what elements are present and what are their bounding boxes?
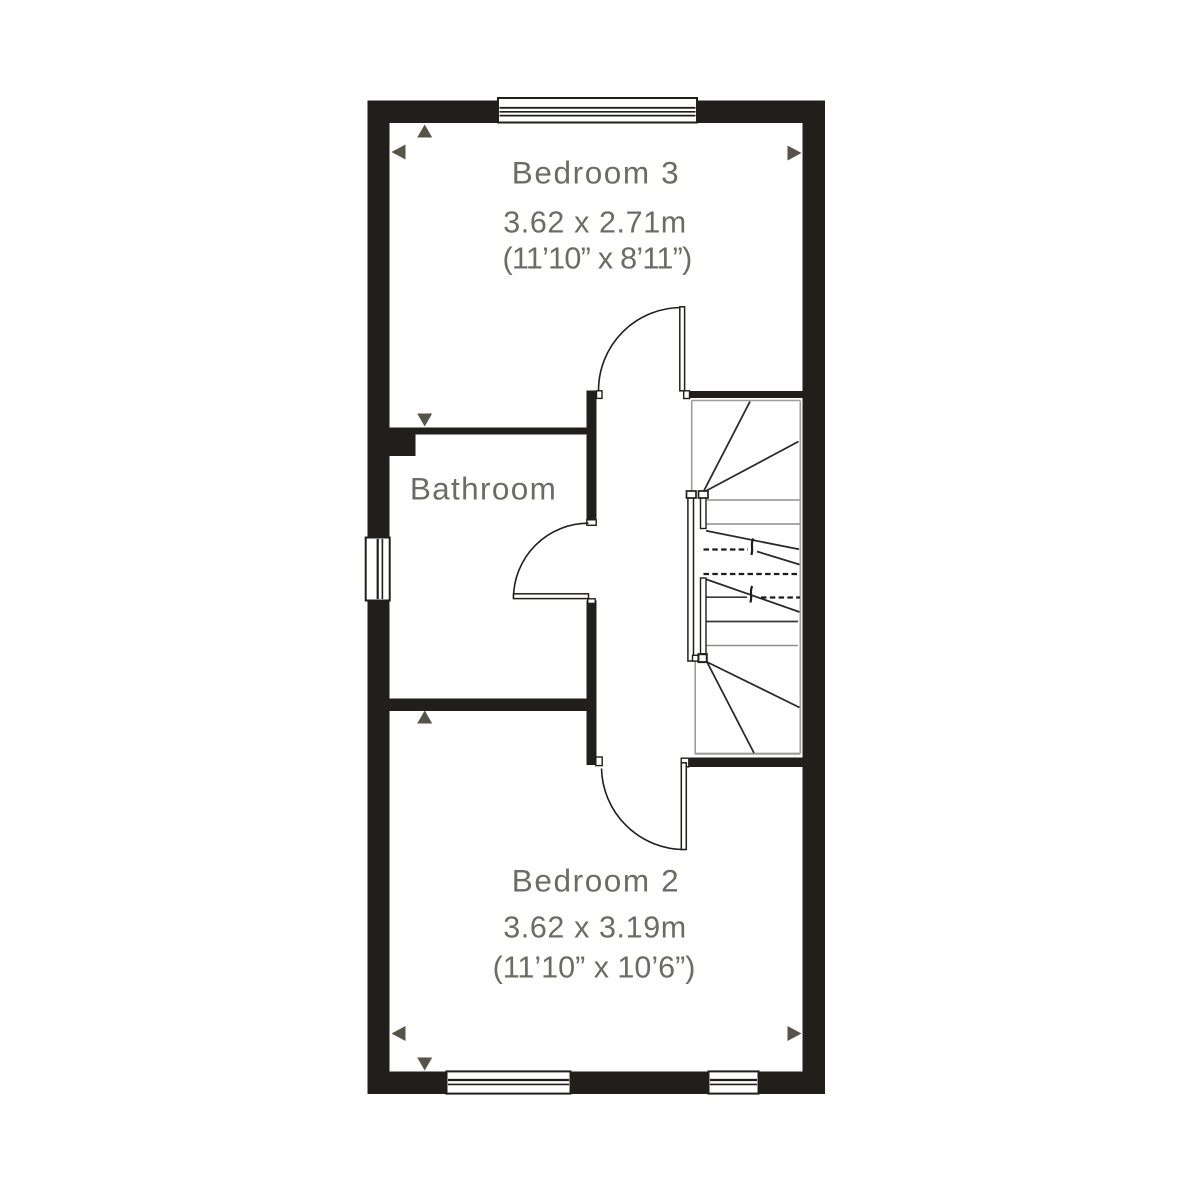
svg-text:3.62 x 2.71m: 3.62 x 2.71m [503,206,687,240]
svg-text:3.62 x 3.19m: 3.62 x 3.19m [503,911,687,945]
svg-text:(11’10” x 8’11”): (11’10” x 8’11”) [502,242,691,276]
svg-text:(11’10” x 10’6”): (11’10” x 10’6”) [493,951,696,985]
svg-text:Bedroom 3: Bedroom 3 [512,155,681,191]
svg-text:Bedroom 2: Bedroom 2 [512,863,681,899]
svg-text:Bathroom: Bathroom [410,471,557,507]
